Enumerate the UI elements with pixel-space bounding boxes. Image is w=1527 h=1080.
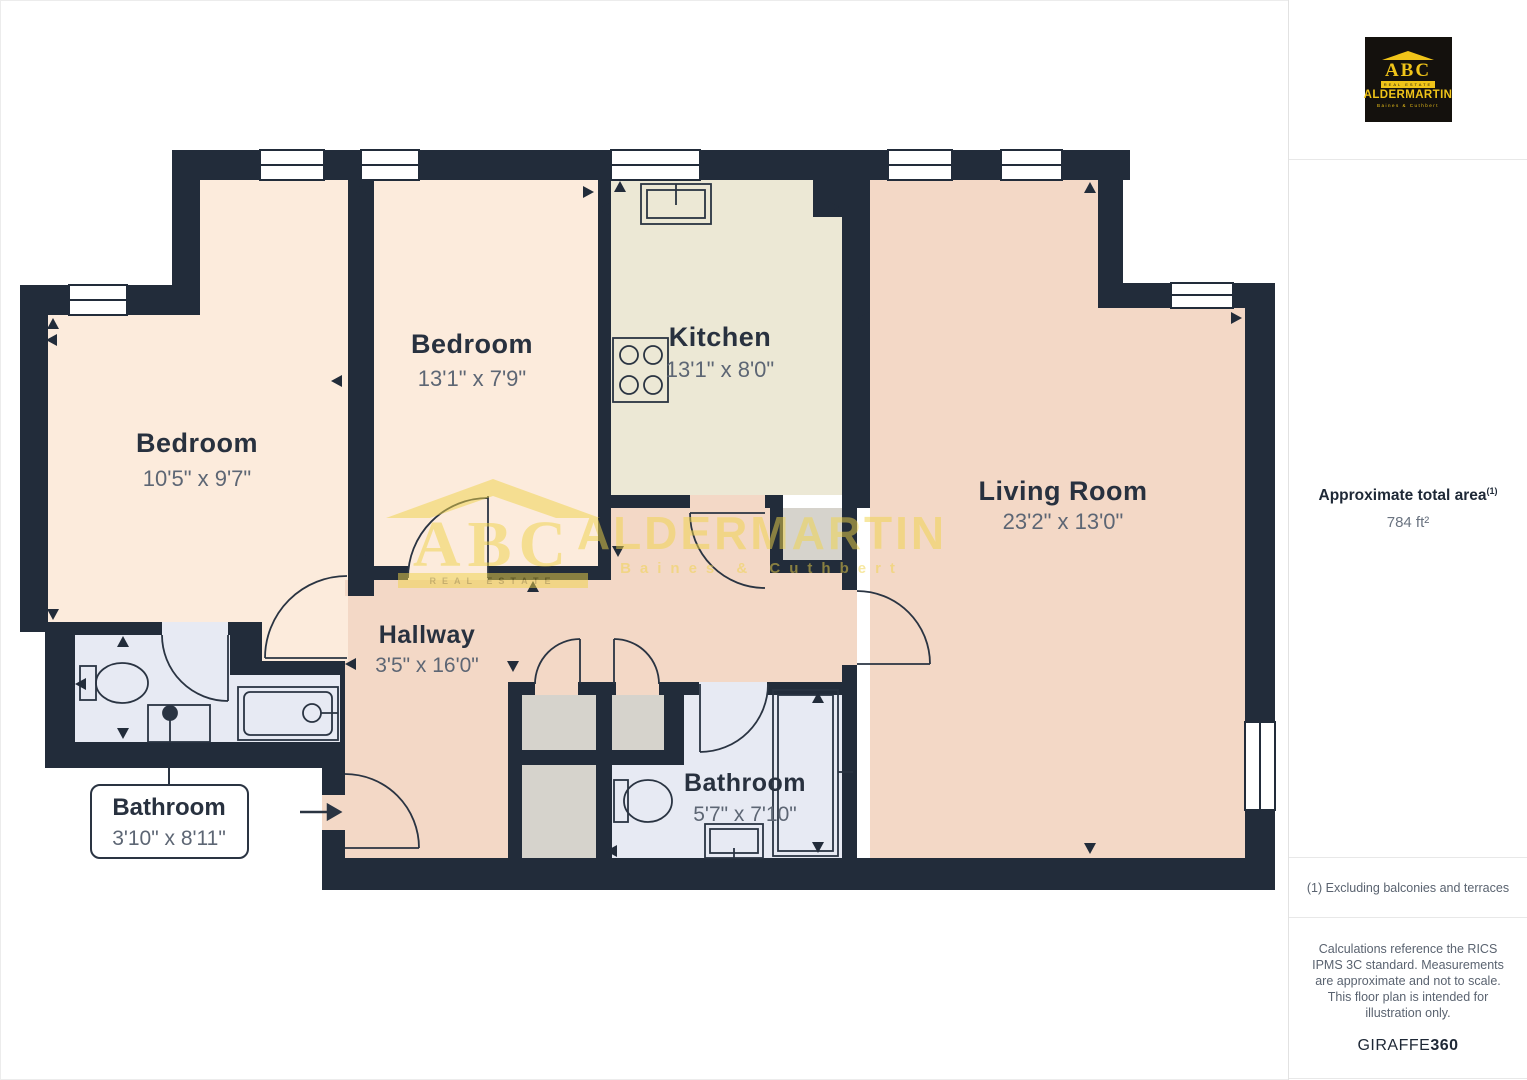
label-kitchen-name: Kitchen [669, 322, 772, 352]
total-area-footnote-marker: (1) [1486, 486, 1497, 496]
watermark-name: ALDERMARTIN [577, 507, 947, 559]
logo-sub: Baines & Cuthbert [1377, 103, 1439, 108]
agency-logo: ABC REAL ESTATE ALDERMARTIN Baines & Cut… [1365, 37, 1452, 122]
giraffe360-brand: GIRAFFE360 [1357, 1037, 1458, 1055]
label-living-dims: 23'2" x 13'0" [1003, 509, 1124, 534]
closet-1 [522, 695, 596, 750]
watermark-estate: REAL ESTATE [429, 576, 556, 586]
disclaimer-section: Calculations reference the RICS IPMS 3C … [1289, 917, 1527, 1079]
window-bedroom2-top [361, 150, 419, 180]
logo-name: ALDERMARTIN [1364, 90, 1453, 102]
logo-roof-icon [1382, 51, 1434, 60]
window-kitchen-top [611, 150, 700, 180]
window-living-top-1 [888, 150, 952, 180]
window-living-top-2 [1001, 150, 1062, 180]
label-bedroom2-dims: 13'1" x 7'9" [418, 366, 526, 391]
logo-section: ABC REAL ESTATE ALDERMARTIN Baines & Cut… [1289, 0, 1527, 160]
alcove-bedroom1-door [262, 596, 348, 661]
floorplan-drawing: ABC REAL ESTATE ALDERMARTIN Baines & Cut… [0, 0, 1288, 1080]
footnote-section: (1) Excluding balconies and terraces [1289, 857, 1527, 917]
logo-abc: ABC [1385, 61, 1431, 80]
total-area-value: 784 ft² [1387, 514, 1430, 531]
footnote-text: (1) Excluding balconies and terraces [1307, 881, 1509, 895]
label-bathroom1-name: Bathroom [112, 794, 225, 821]
brand-360: 360 [1430, 1037, 1458, 1054]
total-area-title: Approximate total area(1) [1319, 486, 1498, 505]
label-bathroom2-dims: 5'7" x 7'10" [693, 803, 797, 826]
entry-arrow [300, 805, 340, 819]
window-bedroom1-top [260, 150, 324, 180]
floorplan-page: ABC REAL ESTATE ALDERMARTIN Baines & Cut… [0, 0, 1527, 1080]
total-area-title-text: Approximate total area [1319, 487, 1487, 504]
label-kitchen-dims: 13'1" x 8'0" [666, 357, 774, 382]
window-living-right [1245, 722, 1275, 810]
label-hallway-dims: 3'5" x 16'0" [375, 654, 479, 677]
label-bathroom1-dims: 3'10" x 8'11" [112, 827, 226, 850]
info-sidebar: ABC REAL ESTATE ALDERMARTIN Baines & Cut… [1288, 0, 1527, 1080]
label-bedroom1-name: Bedroom [136, 428, 258, 458]
watermark-abc: ABC [413, 508, 573, 581]
brand-giraffe: GIRAFFE [1357, 1037, 1430, 1054]
closet-3 [522, 765, 596, 858]
window-bedroom1-left [69, 285, 127, 315]
label-living-name: Living Room [979, 476, 1148, 506]
label-hallway-name: Hallway [379, 621, 476, 649]
bathroom1-callout: Bathroom 3'10" x 8'11" [91, 768, 248, 858]
disclaimer-text: Calculations reference the RICS IPMS 3C … [1306, 941, 1510, 1021]
window-living-step [1171, 283, 1233, 308]
label-bedroom1-dims: 10'5" x 9'7" [143, 466, 251, 491]
label-bedroom2-name: Bedroom [411, 329, 533, 359]
total-area-section: Approximate total area(1) 784 ft² [1289, 160, 1527, 857]
logo-estate: REAL ESTATE [1381, 81, 1435, 88]
label-bathroom2-name: Bathroom [684, 769, 806, 797]
closet-2 [612, 695, 664, 750]
watermark-sub: Baines & Cuthbert [620, 560, 904, 577]
